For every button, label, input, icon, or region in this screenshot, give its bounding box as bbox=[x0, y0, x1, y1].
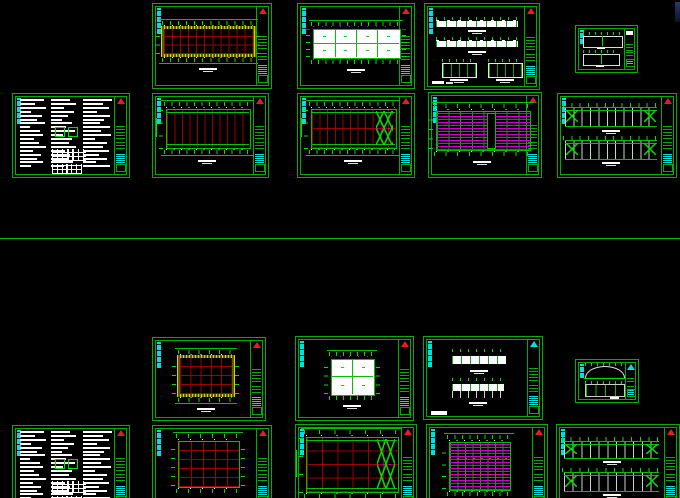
sheet-15[interactable] bbox=[152, 425, 272, 498]
notes-text-line bbox=[83, 99, 112, 101]
notes-detail-dot bbox=[71, 130, 73, 132]
notes-text-line bbox=[83, 435, 103, 437]
x-brace-icon bbox=[566, 143, 578, 155]
grid-node-dots bbox=[436, 109, 529, 110]
title-block bbox=[398, 340, 410, 417]
notes-text-line bbox=[20, 447, 42, 449]
rebar-marks bbox=[313, 59, 399, 60]
notes-text-line bbox=[20, 134, 43, 136]
title-block-rows bbox=[116, 142, 124, 150]
elevation-band bbox=[436, 41, 518, 47]
sheet-18[interactable] bbox=[556, 424, 680, 498]
revision-triangle-icon bbox=[401, 341, 409, 347]
notes-text-line bbox=[83, 431, 112, 433]
sheet-01[interactable] bbox=[152, 3, 272, 89]
notes-text-line bbox=[20, 478, 46, 480]
notes-text-line bbox=[51, 111, 74, 113]
purlin-grid bbox=[436, 111, 531, 151]
revision-triangle-icon bbox=[527, 8, 535, 14]
title-block-text bbox=[526, 65, 535, 76]
title-block-box bbox=[401, 75, 411, 83]
title-block-rows bbox=[626, 43, 633, 50]
x-brace-icon bbox=[644, 110, 656, 122]
notes-text-line bbox=[20, 115, 42, 117]
title-block bbox=[401, 428, 413, 498]
notes-text-line bbox=[51, 142, 69, 144]
title-block-rows bbox=[258, 457, 266, 471]
red-dash-row bbox=[449, 458, 509, 459]
sheet-stamp bbox=[432, 81, 444, 84]
notes-text-line bbox=[51, 138, 72, 140]
title-block-rows bbox=[252, 385, 260, 393]
dimension-line bbox=[584, 378, 625, 379]
dimension-ticks bbox=[162, 58, 255, 62]
notes-detail-dot bbox=[58, 462, 60, 464]
notes-text-line bbox=[20, 431, 44, 433]
notes-detail-box bbox=[68, 459, 78, 469]
drawing-title-mark bbox=[450, 79, 468, 81]
dimension-ticks bbox=[434, 104, 531, 108]
dimension-ticks bbox=[306, 29, 310, 57]
revision-triangle-icon bbox=[259, 8, 267, 14]
sheet-02[interactable] bbox=[297, 3, 415, 89]
title-block-rows bbox=[627, 384, 634, 388]
dimension-ticks bbox=[172, 358, 176, 394]
title-block-rows bbox=[627, 376, 634, 382]
grid-line bbox=[296, 450, 297, 477]
sheet-17[interactable] bbox=[426, 424, 548, 498]
drawing-title-underline bbox=[348, 163, 358, 164]
grid-node-dots bbox=[449, 440, 509, 441]
dimension-ticks bbox=[176, 434, 240, 438]
dimension-ticks bbox=[376, 359, 380, 394]
notes-text-line bbox=[51, 431, 70, 433]
drawing-title-mark bbox=[603, 461, 621, 463]
title-block-rows bbox=[258, 474, 266, 482]
drawing-title-underline bbox=[347, 408, 357, 409]
brace-marks bbox=[377, 464, 395, 465]
dimension-ticks bbox=[159, 107, 163, 149]
drawing-title-mark bbox=[496, 79, 514, 81]
roof-opening bbox=[487, 113, 496, 149]
panel-mark bbox=[387, 36, 390, 37]
notes-text-line bbox=[51, 447, 68, 449]
title-block-rows bbox=[663, 125, 671, 139]
title-block-stamp bbox=[626, 31, 632, 35]
title-block-box bbox=[529, 406, 539, 414]
notes-text-line bbox=[51, 493, 73, 495]
title-block-text bbox=[534, 486, 543, 497]
notes-text-line bbox=[20, 493, 43, 495]
notes-text-line bbox=[83, 119, 104, 121]
notes-text-line bbox=[20, 119, 37, 121]
title-block-rows bbox=[255, 125, 263, 139]
grid-node-dots bbox=[178, 488, 238, 489]
red-dash-row bbox=[436, 137, 529, 138]
dimension-ticks bbox=[442, 442, 446, 489]
panel-mark bbox=[344, 50, 347, 51]
sheet-11[interactable] bbox=[295, 336, 414, 421]
notes-text-line bbox=[20, 107, 46, 109]
notes-text-line bbox=[20, 130, 40, 132]
dimension-ticks bbox=[402, 29, 406, 57]
notes-text-line bbox=[20, 451, 37, 453]
title-block bbox=[625, 363, 635, 399]
dimension-line bbox=[159, 63, 258, 64]
drawing-title-underline bbox=[454, 82, 464, 83]
sheet-stamp bbox=[446, 82, 453, 84]
revision-triangle-icon bbox=[535, 429, 543, 435]
dimension-line bbox=[331, 376, 373, 377]
notes-text-line bbox=[83, 122, 100, 124]
notes-text-line bbox=[83, 115, 110, 117]
dimension-ticks bbox=[488, 59, 521, 62]
section-posts bbox=[452, 391, 504, 398]
panel-mark bbox=[362, 385, 365, 386]
notes-text-line bbox=[83, 451, 104, 453]
dimension-ticks bbox=[156, 29, 160, 54]
grid-line bbox=[156, 118, 157, 137]
notes-text-line bbox=[83, 161, 96, 163]
revision-triangle-icon bbox=[402, 98, 410, 104]
dimension-ticks bbox=[447, 435, 511, 439]
dimension-line bbox=[173, 432, 243, 433]
dimension-ticks bbox=[304, 494, 399, 498]
revision-triangle-icon bbox=[404, 429, 412, 435]
notes-text-line bbox=[83, 150, 109, 152]
drawing-title-mark bbox=[199, 68, 217, 70]
title-block-rows bbox=[666, 456, 674, 470]
dimension-line bbox=[175, 348, 237, 349]
title-block-box bbox=[400, 407, 410, 415]
title-block bbox=[527, 340, 539, 416]
column-grid bbox=[180, 358, 232, 394]
layout-tab-icon bbox=[580, 364, 584, 378]
revision-triangle-icon bbox=[667, 429, 675, 435]
layout-tab-icon bbox=[431, 429, 435, 455]
revision-triangle-icon bbox=[259, 430, 267, 436]
dimension-ticks bbox=[311, 60, 401, 64]
section-outline bbox=[442, 63, 477, 78]
sheet-10[interactable] bbox=[152, 337, 266, 421]
notes-text-line bbox=[51, 146, 76, 148]
title-block-rows bbox=[529, 384, 537, 392]
panel-plan bbox=[313, 29, 401, 59]
notes-text-line bbox=[51, 443, 74, 445]
drawing-title-mark bbox=[602, 162, 620, 164]
notes-text-line bbox=[83, 134, 111, 136]
notes-text-line bbox=[83, 146, 103, 148]
notes-text-line bbox=[83, 454, 100, 456]
x-brace-icon bbox=[565, 475, 577, 487]
dimension-ticks bbox=[241, 441, 245, 486]
notes-text-line bbox=[20, 165, 31, 167]
drawing-title-mark bbox=[343, 405, 361, 407]
grid-node-dots bbox=[449, 491, 509, 492]
dimension-ticks bbox=[452, 349, 506, 352]
title-block bbox=[114, 429, 126, 498]
notes-text-line bbox=[83, 482, 109, 484]
title-block-rows bbox=[529, 367, 537, 381]
sheet-12[interactable] bbox=[423, 336, 543, 420]
title-block-box bbox=[116, 164, 126, 172]
drawing-title-mark bbox=[197, 408, 215, 410]
revision-triangle-icon bbox=[117, 98, 125, 104]
dimension-line bbox=[161, 100, 254, 101]
brace-marks bbox=[376, 128, 393, 129]
notes-text-line bbox=[20, 474, 39, 476]
grid-node-dots bbox=[164, 57, 253, 58]
x-brace-icon bbox=[646, 475, 658, 487]
title-block-box bbox=[626, 59, 635, 67]
dimension-line bbox=[313, 43, 399, 44]
sheet-04[interactable] bbox=[575, 25, 638, 73]
dimension-line bbox=[175, 403, 237, 404]
title-block-box bbox=[401, 164, 411, 172]
dimension-ticks bbox=[583, 32, 621, 35]
drawing-title-underline bbox=[201, 411, 211, 412]
notes-text-line bbox=[20, 142, 39, 144]
column-grid bbox=[166, 109, 251, 149]
panel-mark bbox=[323, 36, 326, 37]
frame-section-outline bbox=[583, 36, 623, 48]
dimension-ticks bbox=[299, 435, 303, 493]
notes-text-line bbox=[51, 119, 62, 121]
drawing-title-mark bbox=[198, 160, 216, 162]
notes-text-line bbox=[20, 439, 46, 441]
drawing-title-underline bbox=[606, 133, 616, 134]
notes-text-line bbox=[51, 115, 68, 117]
revision-triangle-icon bbox=[256, 98, 264, 104]
grid-line bbox=[301, 118, 302, 137]
notes-text-line bbox=[51, 439, 64, 441]
sheet-08[interactable] bbox=[428, 92, 542, 178]
drawing-title-mark bbox=[470, 370, 488, 372]
drawing-title-mark bbox=[610, 397, 619, 399]
sheet-06[interactable] bbox=[152, 93, 269, 178]
dimension-line bbox=[309, 20, 403, 21]
revision-triangle-icon bbox=[664, 98, 672, 104]
window-edge-artifact bbox=[675, 2, 680, 22]
panel-mark bbox=[387, 50, 390, 51]
notes-text-line bbox=[83, 142, 107, 144]
title-block-rows bbox=[116, 125, 124, 139]
notes-text-line bbox=[20, 158, 37, 160]
notes-text-line bbox=[83, 478, 103, 480]
title-block-box bbox=[258, 75, 268, 83]
dimension-ticks bbox=[304, 107, 308, 149]
title-block bbox=[114, 97, 126, 174]
revision-triangle-icon bbox=[402, 8, 410, 14]
title-block-rows bbox=[255, 142, 263, 150]
grid-node-dots bbox=[306, 493, 397, 494]
notes-text-line bbox=[20, 490, 37, 492]
sheet-label bbox=[431, 411, 447, 415]
grid-line bbox=[602, 36, 603, 46]
notes-text-line bbox=[20, 122, 45, 124]
notes-text-line bbox=[51, 161, 73, 163]
title-block bbox=[624, 29, 634, 69]
title-block bbox=[250, 341, 262, 417]
notes-text-line bbox=[83, 130, 101, 132]
grid-node-dots bbox=[166, 107, 249, 108]
notes-text-line bbox=[20, 482, 33, 484]
notes-text-line bbox=[51, 107, 64, 109]
drawing-title-mark bbox=[347, 69, 365, 71]
notes-table bbox=[68, 481, 86, 493]
title-block-box bbox=[663, 164, 673, 172]
drawing-title-underline bbox=[472, 54, 482, 55]
title-block-rows bbox=[401, 142, 409, 150]
title-block-rows bbox=[626, 52, 633, 56]
notes-text-line bbox=[83, 447, 110, 449]
notes-text-line bbox=[20, 154, 41, 156]
title-block-rows bbox=[666, 473, 674, 481]
notes-text-line bbox=[51, 474, 69, 476]
column-grid bbox=[178, 441, 240, 488]
layout-tab-icon bbox=[429, 8, 433, 34]
elevation-band bbox=[452, 384, 504, 391]
title-block-text bbox=[258, 65, 267, 76]
notes-text-line bbox=[20, 435, 35, 437]
dimension-line bbox=[431, 102, 534, 103]
panel-mark bbox=[323, 50, 326, 51]
notes-text-line bbox=[51, 435, 76, 437]
grid-node-dots bbox=[180, 354, 232, 355]
notes-text-line bbox=[20, 486, 41, 488]
drawing-title-underline bbox=[473, 405, 483, 406]
x-brace-icon bbox=[644, 143, 656, 155]
notes-text-line bbox=[51, 103, 76, 105]
dimension-line bbox=[301, 428, 402, 429]
dimension-ticks bbox=[442, 59, 475, 62]
notes-text-line bbox=[20, 99, 44, 101]
sheet-03[interactable] bbox=[424, 3, 540, 90]
column-grid bbox=[164, 29, 253, 54]
title-block-box bbox=[528, 164, 538, 172]
drawing-title-mark bbox=[602, 130, 620, 132]
cad-workspace bbox=[0, 0, 680, 498]
dimension-ticks bbox=[164, 102, 251, 106]
dimension-ticks bbox=[178, 398, 234, 402]
panel-mark bbox=[341, 385, 344, 386]
drawing-title-underline bbox=[351, 72, 361, 73]
title-block bbox=[661, 97, 673, 174]
dimension-line bbox=[306, 100, 400, 101]
revision-triangle-icon bbox=[117, 430, 125, 436]
notes-text-line bbox=[20, 138, 34, 140]
grid-node-dots bbox=[306, 435, 397, 436]
title-block-rows bbox=[400, 385, 408, 393]
title-block-rows bbox=[252, 368, 260, 382]
drawing-title-mark bbox=[473, 161, 491, 163]
notes-text-line bbox=[20, 470, 34, 472]
dimension-ticks bbox=[452, 378, 504, 381]
dimension-ticks bbox=[434, 152, 531, 156]
notes-text-line bbox=[20, 161, 43, 163]
purlin-grid bbox=[449, 442, 511, 491]
grid-node-dots bbox=[164, 25, 253, 26]
notes-detail-box bbox=[68, 127, 78, 137]
title-block-text bbox=[666, 486, 675, 497]
title-block-rows bbox=[534, 456, 542, 470]
title-block-box bbox=[627, 389, 636, 397]
sheet-14[interactable] bbox=[12, 425, 130, 498]
notes-text-line bbox=[83, 158, 107, 160]
notes-text-line bbox=[20, 462, 40, 464]
title-block-rows bbox=[534, 473, 542, 481]
title-block-rows bbox=[526, 53, 534, 61]
sheet-05[interactable] bbox=[12, 93, 130, 178]
dimension-ticks bbox=[309, 102, 397, 106]
title-block-rows bbox=[526, 35, 534, 49]
notes-text-line bbox=[83, 103, 103, 105]
sheet-13[interactable] bbox=[575, 359, 639, 403]
title-block-box bbox=[526, 76, 536, 84]
model-space-divider-line[interactable] bbox=[0, 238, 680, 239]
title-block bbox=[399, 97, 411, 174]
sheet-16[interactable] bbox=[295, 424, 417, 498]
grid-node-dots bbox=[311, 107, 395, 108]
drawing-title-mark bbox=[468, 51, 486, 53]
notes-text-line bbox=[51, 454, 72, 456]
drawing-title-mark bbox=[344, 160, 362, 162]
notes-table bbox=[66, 164, 82, 174]
layout-tab-icon bbox=[428, 341, 432, 367]
title-block-rows bbox=[403, 456, 411, 470]
title-block-rows bbox=[403, 473, 411, 481]
title-block-rows bbox=[400, 368, 408, 382]
notes-text-line bbox=[20, 454, 45, 456]
dimension-ticks bbox=[256, 29, 260, 54]
notes-text-line bbox=[20, 146, 46, 148]
notes-text-line bbox=[20, 103, 35, 105]
dimension-line bbox=[564, 475, 659, 476]
detail-columns bbox=[585, 384, 625, 397]
title-block-text bbox=[401, 65, 410, 76]
drawing-title-mark bbox=[596, 66, 604, 67]
notes-text-line bbox=[83, 458, 110, 460]
title-block-rows bbox=[663, 142, 671, 150]
notes-text-line bbox=[51, 99, 70, 101]
notes-text-line bbox=[83, 111, 97, 113]
section-outline bbox=[488, 63, 523, 78]
sheet-09[interactable] bbox=[557, 93, 677, 178]
drawing-title-mark bbox=[597, 48, 605, 49]
title-block bbox=[256, 429, 268, 498]
drawing-title-underline bbox=[474, 373, 484, 374]
notes-text-line bbox=[51, 122, 72, 124]
revision-triangle-icon bbox=[253, 342, 261, 348]
title-block-rows bbox=[401, 125, 409, 139]
notes-text-line bbox=[20, 443, 31, 445]
notes-text-line bbox=[83, 138, 95, 140]
layout-tab-icon bbox=[157, 342, 161, 368]
drawing-title-underline bbox=[477, 164, 487, 165]
title-block-rows bbox=[116, 457, 124, 471]
red-dash-row bbox=[436, 125, 529, 126]
dimension-ticks bbox=[171, 441, 175, 486]
grid-node-dots bbox=[311, 149, 395, 150]
dimension-ticks bbox=[304, 430, 399, 434]
notes-text-line bbox=[83, 439, 109, 441]
notes-detail-dot bbox=[71, 462, 73, 464]
sheet-07[interactable] bbox=[297, 93, 415, 178]
drawing-title-underline bbox=[202, 163, 212, 164]
dimension-line bbox=[166, 112, 249, 113]
x-brace-icon bbox=[565, 444, 577, 454]
notes-text-line bbox=[83, 165, 110, 167]
